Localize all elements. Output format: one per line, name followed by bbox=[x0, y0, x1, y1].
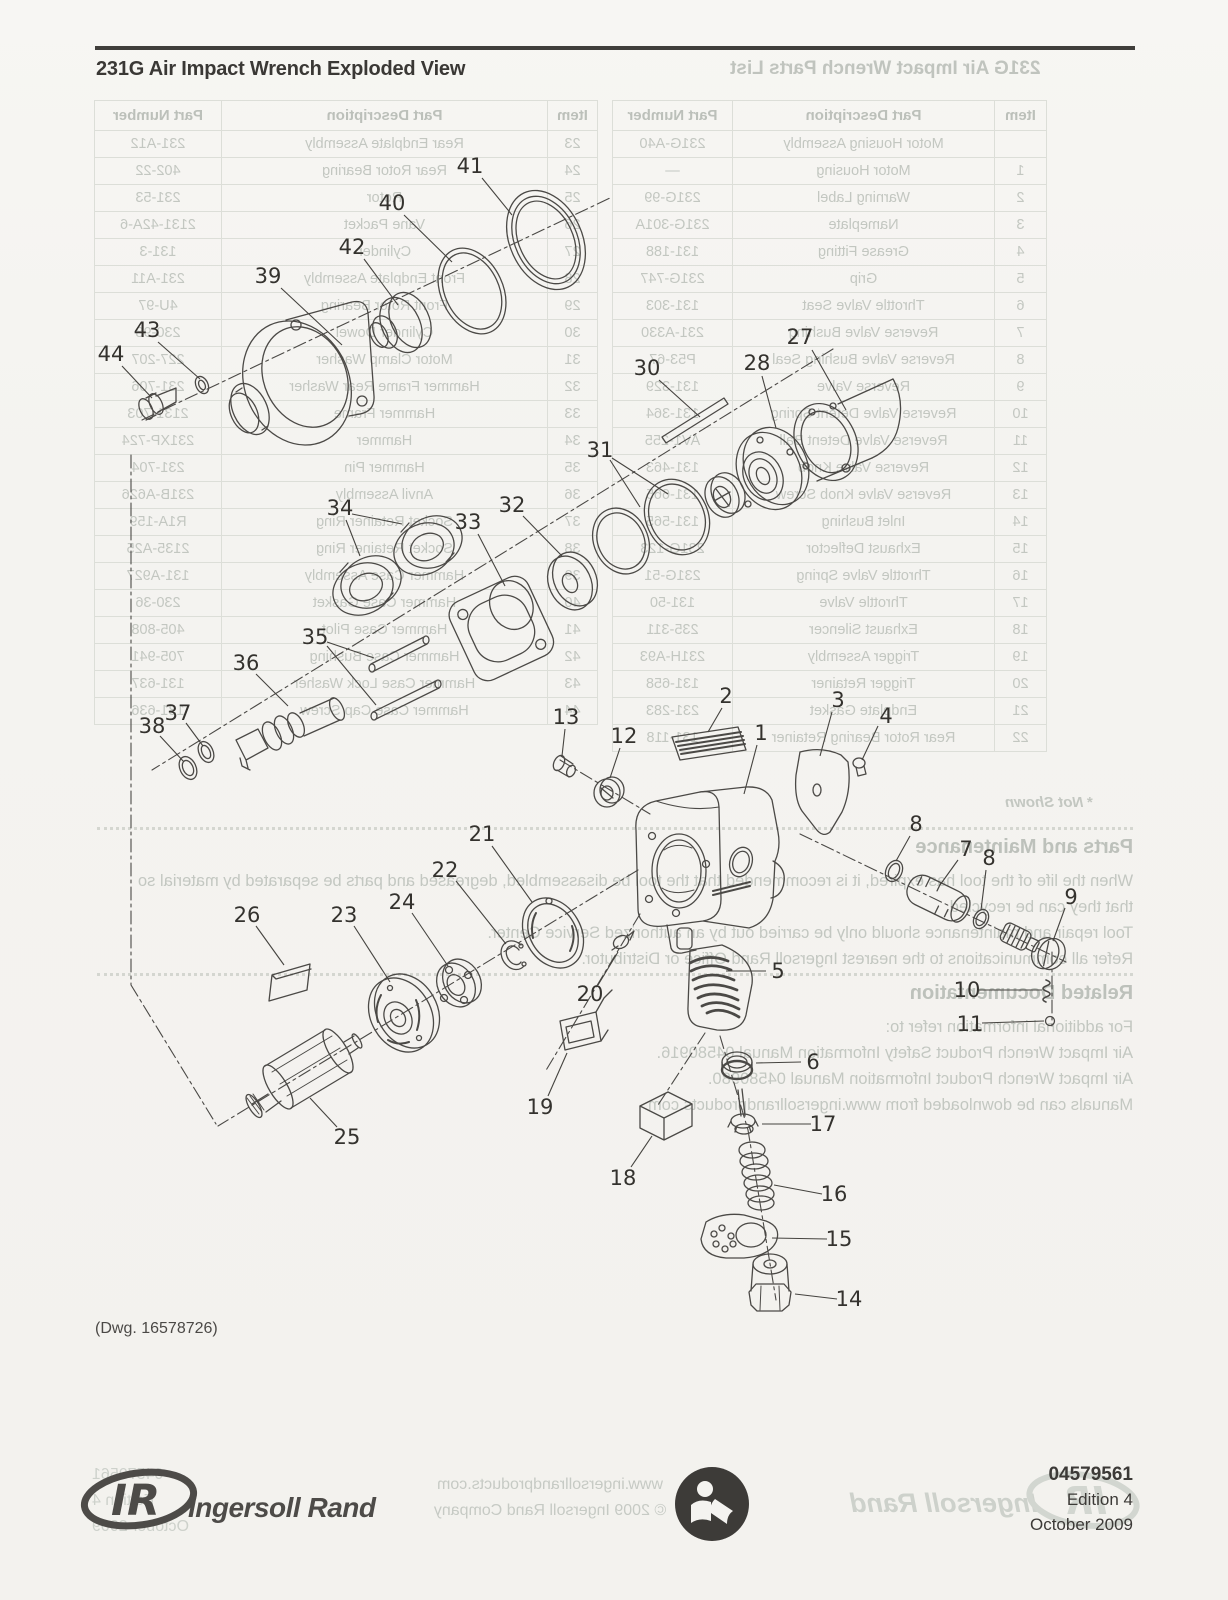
part-15-exhaust-deflector bbox=[701, 1214, 778, 1258]
callout-leader-line bbox=[708, 708, 722, 732]
part-27-cylinder bbox=[782, 379, 901, 491]
part-34-hammers bbox=[324, 506, 470, 625]
part-41-pilot-ring bbox=[491, 178, 600, 303]
callout-number-10: 10 bbox=[954, 978, 981, 1002]
callout-leader-line bbox=[756, 1062, 801, 1063]
part-24-rear-rotor-bearing bbox=[429, 952, 489, 1014]
doc-number: 04579561 bbox=[1030, 1462, 1133, 1487]
callout-leader-line bbox=[352, 514, 402, 524]
callout-leader-line bbox=[659, 380, 700, 417]
callout-number-27: 27 bbox=[787, 325, 814, 349]
callout-leader-line bbox=[610, 460, 640, 507]
callout-number-18: 18 bbox=[610, 1166, 637, 1190]
part-30-cylinder-dowel bbox=[662, 398, 728, 443]
callout-leader-line bbox=[158, 342, 200, 379]
bleed-website: www.ingersollrandproducts.com bbox=[385, 1472, 715, 1498]
part-8-oring-front bbox=[882, 858, 906, 885]
callout-leader-line bbox=[772, 1238, 827, 1239]
callout-number-44: 44 bbox=[98, 342, 125, 366]
callout-number-13: 13 bbox=[553, 705, 580, 729]
callout-leader-line bbox=[862, 726, 878, 760]
part-7-reverse-valve-bushing bbox=[902, 870, 974, 926]
callout-number-1: 1 bbox=[754, 721, 767, 745]
callout-number-36: 36 bbox=[233, 651, 260, 675]
callout-number-6: 6 bbox=[806, 1050, 819, 1074]
callout-leader-line bbox=[523, 516, 562, 556]
callout-leader-line bbox=[256, 674, 288, 706]
brand-wordmark: Ingersoll Rand bbox=[188, 1492, 375, 1524]
part-25-rotor bbox=[243, 1025, 364, 1120]
scanned-manual-page: 231G Air Impact Wrench Parts List Item P… bbox=[0, 0, 1228, 1600]
callout-leader-line bbox=[492, 846, 532, 902]
part-36-anvil-assembly bbox=[236, 696, 348, 770]
callout-number-31: 31 bbox=[587, 438, 614, 462]
callout-leader-line bbox=[762, 376, 776, 428]
callout-number-5: 5 bbox=[771, 959, 784, 983]
callout-leader-line bbox=[327, 642, 374, 658]
part-6-throttle-valve-seat bbox=[722, 1052, 752, 1079]
callout-leader-line bbox=[610, 748, 620, 778]
part-18-exhaust-silencer bbox=[640, 1092, 692, 1140]
callout-leader-line bbox=[354, 926, 390, 982]
callout-number-35: 35 bbox=[302, 625, 329, 649]
callout-number-16: 16 bbox=[821, 1182, 848, 1206]
callout-number-7: 7 bbox=[959, 837, 972, 861]
callout-leader-line bbox=[812, 350, 846, 410]
callout-number-32: 32 bbox=[499, 493, 526, 517]
callout-number-15: 15 bbox=[826, 1227, 853, 1251]
part-31-motor-clamp-washers bbox=[582, 469, 721, 584]
callout-leader-line bbox=[310, 1098, 337, 1127]
callout-number-9: 9 bbox=[1064, 885, 1077, 909]
callout-number-25: 25 bbox=[334, 1125, 361, 1149]
part-1-motor-housing bbox=[636, 787, 784, 953]
callout-number-14: 14 bbox=[836, 1287, 863, 1311]
callout-number-42: 42 bbox=[339, 235, 366, 259]
callout-number-33: 33 bbox=[455, 510, 482, 534]
callout-leader-line bbox=[186, 723, 203, 746]
callout-leader-line bbox=[774, 1185, 822, 1194]
part-43-lock-washer bbox=[193, 374, 211, 395]
bleed-copyright: © 2009 Ingersoll Rand Company bbox=[385, 1498, 715, 1524]
part-5-grip bbox=[688, 945, 752, 1030]
part-11-detent-ball bbox=[1046, 1017, 1055, 1026]
exploded-view-diagram: 4140423943442728303132333435363738234131… bbox=[0, 0, 1228, 1600]
callout-labels: 4140423943442728303132333435363738234131… bbox=[98, 154, 1078, 1311]
part-8-oring-rear bbox=[970, 907, 991, 931]
callout-leader-line bbox=[404, 215, 452, 262]
callout-leader-line bbox=[981, 870, 986, 910]
document-id-block: 04579561 Edition 4 October 2009 bbox=[1030, 1462, 1133, 1537]
part-20-trigger-retainer bbox=[611, 931, 634, 951]
callout-number-43: 43 bbox=[134, 318, 161, 342]
part-4-grease-fitting bbox=[853, 758, 866, 776]
callout-leader-line bbox=[896, 836, 910, 861]
part-39-hammer-case bbox=[223, 301, 374, 463]
part-14-inlet-bushing bbox=[749, 1254, 791, 1311]
doc-edition: Edition 4 bbox=[1030, 1487, 1133, 1512]
callout-number-4: 4 bbox=[879, 704, 892, 728]
callout-number-12: 12 bbox=[611, 724, 638, 748]
callout-leader-line bbox=[562, 729, 565, 756]
callout-number-22: 22 bbox=[432, 858, 459, 882]
callout-number-11: 11 bbox=[957, 1012, 984, 1036]
part-3-nameplate bbox=[796, 750, 850, 835]
callout-number-37: 37 bbox=[165, 701, 192, 725]
callout-number-39: 39 bbox=[255, 264, 282, 288]
part-35-hammer-pins bbox=[369, 636, 441, 720]
callout-number-30: 30 bbox=[634, 356, 661, 380]
callout-leader-line bbox=[327, 646, 376, 705]
callout-leader-line bbox=[122, 366, 152, 398]
part-16-throttle-valve-spring bbox=[739, 1142, 774, 1210]
callout-number-24: 24 bbox=[389, 890, 416, 914]
bleedthrough-brand: Ingersoll Rand bbox=[850, 1488, 1038, 1519]
part-33-hammer-frame bbox=[444, 571, 558, 685]
callout-number-40: 40 bbox=[379, 191, 406, 215]
doc-date: October 2009 bbox=[1030, 1512, 1133, 1537]
callout-leader-line bbox=[346, 520, 360, 556]
part-10-detent-spring bbox=[1043, 980, 1050, 1002]
callout-leader-line bbox=[820, 712, 832, 756]
callout-number-21: 21 bbox=[469, 822, 496, 846]
callout-number-8: 8 bbox=[982, 846, 995, 870]
callout-leader-line bbox=[982, 1021, 1044, 1023]
callout-leader-line bbox=[281, 288, 342, 345]
part-44-cap-screw bbox=[136, 388, 176, 422]
part-26-vane bbox=[269, 964, 311, 1001]
part-12-reverse-valve-knob bbox=[594, 777, 624, 807]
read-manual-icon bbox=[673, 1465, 751, 1543]
callout-number-38: 38 bbox=[139, 714, 166, 738]
part-40-case-gasket bbox=[425, 237, 519, 345]
assembly-axis-lines bbox=[131, 198, 1066, 1300]
callout-number-23: 23 bbox=[331, 903, 358, 927]
part-37-socket-retainer-ring bbox=[195, 739, 217, 765]
ingersoll-rand-logo-icon: IR bbox=[78, 1466, 203, 1532]
callout-leader-line bbox=[256, 926, 284, 965]
callout-number-19: 19 bbox=[527, 1095, 554, 1119]
part-22-retaining-clip bbox=[501, 941, 526, 970]
callout-leader-line bbox=[631, 1136, 652, 1167]
callout-leader-line bbox=[364, 259, 398, 305]
callout-leader-line bbox=[478, 534, 505, 586]
callout-number-17: 17 bbox=[810, 1112, 837, 1136]
callout-number-20: 20 bbox=[577, 982, 604, 1006]
callout-leader-line bbox=[1053, 908, 1065, 941]
callout-number-2: 2 bbox=[719, 684, 732, 708]
callout-number-28: 28 bbox=[744, 351, 771, 375]
callout-leader-line bbox=[940, 860, 958, 885]
callout-number-26: 26 bbox=[234, 903, 261, 927]
callout-number-8: 8 bbox=[909, 812, 922, 836]
callout-number-3: 3 bbox=[831, 688, 844, 712]
part-13-knob-screw bbox=[551, 754, 577, 778]
svg-text:IR: IR bbox=[111, 1476, 160, 1526]
part-2-warning-label bbox=[672, 727, 746, 760]
callout-number-34: 34 bbox=[327, 496, 354, 520]
callout-number-41: 41 bbox=[457, 154, 484, 178]
part-38-socket-retainer-oring bbox=[176, 754, 201, 783]
callout-leader-line bbox=[795, 1294, 837, 1299]
callout-leader-line bbox=[548, 1053, 567, 1096]
part-32-hammer-frame-rear-washer bbox=[539, 545, 606, 618]
bleedthrough-footer-center: www.ingersollrandproducts.com © 2009 Ing… bbox=[385, 1472, 715, 1524]
callout-leader-line bbox=[456, 881, 506, 944]
callout-leader-line bbox=[482, 178, 512, 215]
callout-leader-line bbox=[598, 952, 618, 985]
callout-leader-line bbox=[412, 913, 448, 966]
